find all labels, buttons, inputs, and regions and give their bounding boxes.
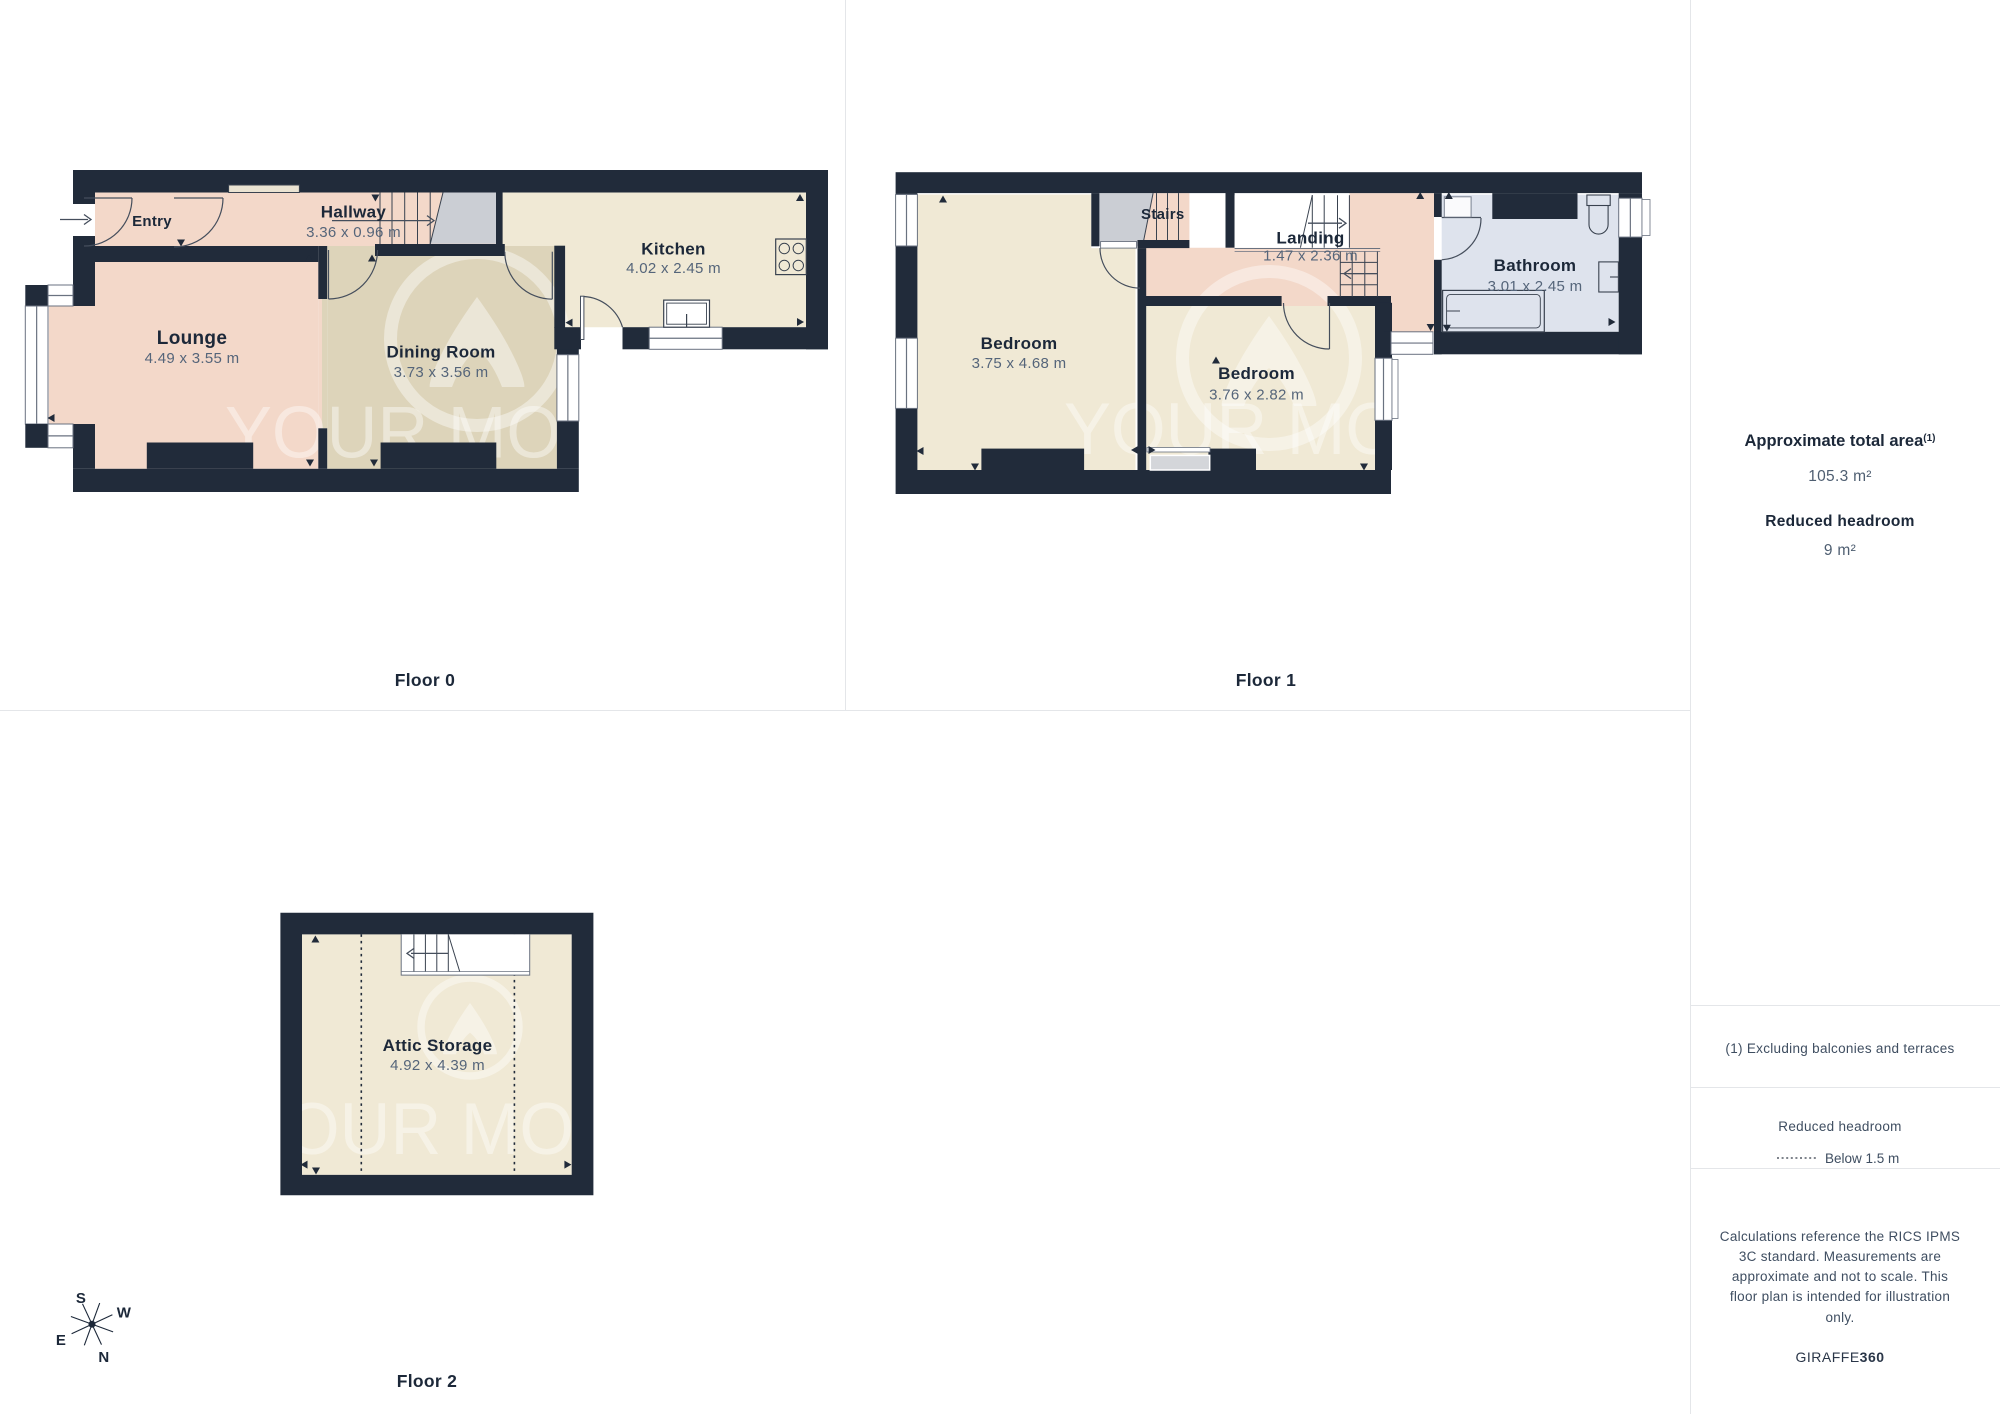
svg-text:Entry: Entry bbox=[132, 213, 172, 230]
svg-text:3.76 x 2.82 m: 3.76 x 2.82 m bbox=[1209, 387, 1304, 404]
svg-text:Lounge: Lounge bbox=[157, 328, 227, 349]
svg-text:Dining Room: Dining Room bbox=[386, 343, 495, 362]
svg-text:Reduced headroom: Reduced headroom bbox=[1765, 513, 1915, 530]
svg-text:1.47 x 2.36 m: 1.47 x 2.36 m bbox=[1263, 248, 1358, 265]
svg-text:4.92 x 4.39 m: 4.92 x 4.39 m bbox=[390, 1057, 485, 1074]
svg-text:3.73 x 3.56 m: 3.73 x 3.56 m bbox=[394, 364, 489, 381]
svg-text:N: N bbox=[98, 1349, 109, 1366]
svg-text:Approximate total area(1): Approximate total area(1) bbox=[1744, 432, 1935, 450]
svg-text:Bathroom: Bathroom bbox=[1494, 256, 1577, 275]
svg-text:4.02 x 2.45 m: 4.02 x 2.45 m bbox=[626, 260, 721, 277]
svg-text:Hallway: Hallway bbox=[321, 203, 387, 222]
svg-text:Reduced headroom: Reduced headroom bbox=[1778, 1119, 1901, 1134]
svg-text:GIRAFFE360: GIRAFFE360 bbox=[1795, 1349, 1884, 1365]
svg-text:Below 1.5 m: Below 1.5 m bbox=[1825, 1151, 1899, 1166]
svg-text:3C standard. Measurements are: 3C standard. Measurements are bbox=[1739, 1249, 1941, 1264]
svg-text:3.01 x 2.45 m: 3.01 x 2.45 m bbox=[1488, 278, 1583, 295]
svg-text:S: S bbox=[76, 1290, 86, 1307]
svg-text:105.3 m²: 105.3 m² bbox=[1808, 468, 1872, 485]
svg-text:Floor 2: Floor 2 bbox=[397, 1371, 457, 1391]
svg-text:Stairs: Stairs bbox=[1141, 206, 1185, 223]
svg-text:only.: only. bbox=[1825, 1310, 1854, 1325]
svg-text:approximate and not to scale.: approximate and not to scale. This bbox=[1732, 1269, 1948, 1284]
svg-text:YOUR MOVE: YOUR MOVE bbox=[238, 1089, 668, 1170]
svg-text:Bedroom: Bedroom bbox=[981, 334, 1058, 353]
svg-text:Calculations reference the RIC: Calculations reference the RICS IPMS bbox=[1720, 1229, 1960, 1244]
svg-text:Landing: Landing bbox=[1276, 229, 1344, 248]
svg-text:Bedroom: Bedroom bbox=[1218, 364, 1295, 383]
svg-text:Floor 0: Floor 0 bbox=[395, 670, 455, 690]
svg-text:Attic Storage: Attic Storage bbox=[383, 1036, 493, 1055]
svg-text:(1) Excluding balconies and te: (1) Excluding balconies and terraces bbox=[1725, 1041, 1954, 1056]
svg-text:9 m²: 9 m² bbox=[1824, 542, 1856, 559]
svg-text:W: W bbox=[117, 1305, 132, 1322]
svg-text:floor plan is intended for ill: floor plan is intended for illustration bbox=[1730, 1289, 1950, 1304]
svg-text:Kitchen: Kitchen bbox=[641, 240, 705, 259]
svg-text:3.75 x 4.68 m: 3.75 x 4.68 m bbox=[972, 355, 1067, 372]
svg-text:3.36 x 0.96 m: 3.36 x 0.96 m bbox=[306, 224, 401, 241]
svg-text:4.49 x 3.55 m: 4.49 x 3.55 m bbox=[145, 350, 240, 367]
svg-text:E: E bbox=[56, 1332, 66, 1349]
svg-text:Floor 1: Floor 1 bbox=[1236, 670, 1296, 690]
